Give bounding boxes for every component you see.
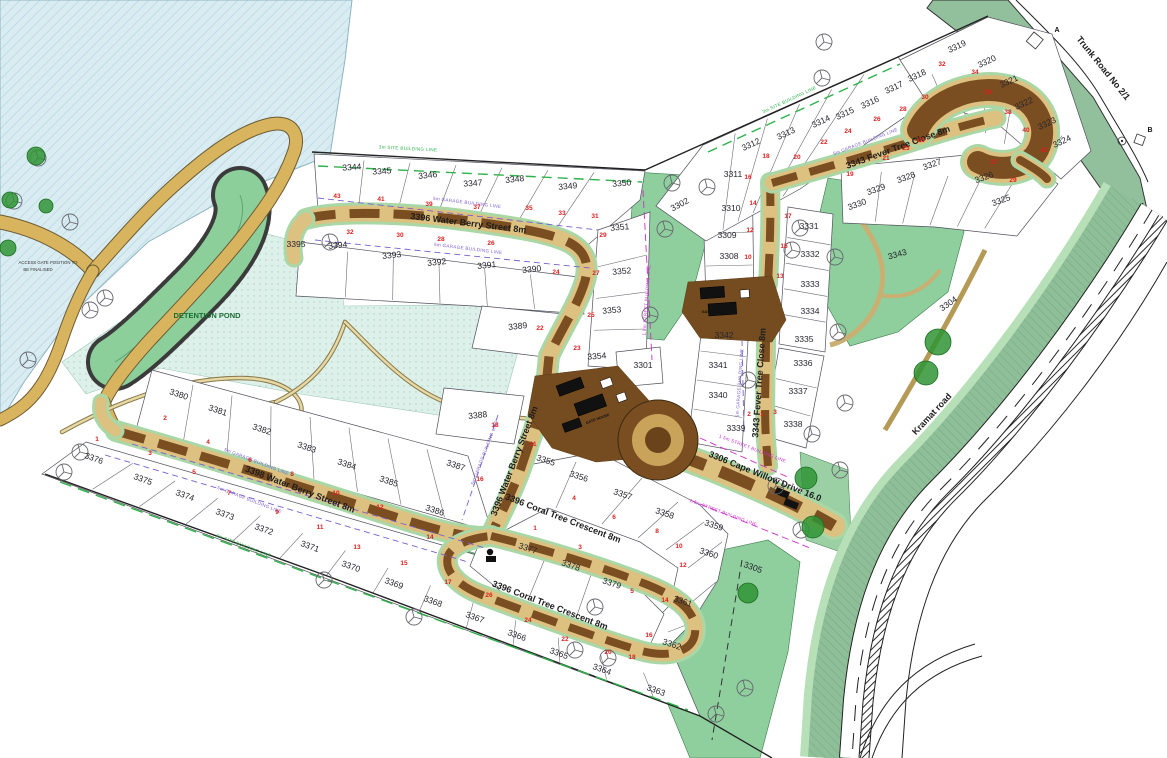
plot-number: 3395 <box>286 239 305 249</box>
red-dimension: 39 <box>425 201 433 208</box>
red-dimension: 20 <box>793 154 801 161</box>
green-tree-icon <box>738 583 758 603</box>
red-dimension: 10 <box>675 543 683 550</box>
plot-number: 3301 <box>633 360 652 370</box>
plot-number: 3333 <box>800 279 819 289</box>
red-dimension: 21 <box>882 155 890 162</box>
plot-number: 3336 <box>793 358 812 368</box>
red-dimension: 24 <box>844 128 852 135</box>
survey-mark-icon <box>1121 140 1123 142</box>
plot-number: 3344 <box>342 161 362 172</box>
red-dimension: 22 <box>820 139 828 146</box>
pump-icon <box>486 556 496 562</box>
red-dimension: 2 <box>747 411 751 418</box>
green-tree-icon <box>925 329 951 355</box>
area-label: BE FINALISED <box>23 267 52 272</box>
plot-number: 3332 <box>800 249 819 259</box>
pump-icon <box>487 549 493 555</box>
red-dimension: 3 <box>148 450 152 457</box>
red-dimension: 1 <box>533 525 537 532</box>
plot-number: 3348 <box>505 173 525 185</box>
red-dimension: 9 <box>275 509 279 516</box>
red-dimension: 32 <box>346 229 354 236</box>
plot-number: 3308 <box>719 251 738 261</box>
red-dimension: 38 <box>1004 109 1012 116</box>
red-dimension: 35 <box>525 205 533 212</box>
red-dimension: 32 <box>938 61 946 68</box>
plot-number: 3394 <box>328 239 348 251</box>
plot-number: 3349 <box>558 180 578 192</box>
red-dimension: 31 <box>591 213 599 220</box>
red-dimension: 6 <box>612 514 616 521</box>
red-dimension: 30 <box>921 94 929 101</box>
plot-number: 3337 <box>788 386 807 396</box>
red-dimension: 3 <box>578 544 582 551</box>
red-dimension: 28 <box>899 106 907 113</box>
red-dimension: 13 <box>353 544 361 551</box>
red-dimension: 8 <box>655 528 659 535</box>
red-dimension: 26 <box>873 116 881 123</box>
red-dimension: 5 <box>630 588 634 595</box>
plot-number: 3351 <box>610 221 630 233</box>
red-dimension: 10 <box>332 490 340 497</box>
plot-number: 3340 <box>708 390 727 400</box>
plot-number: 3352 <box>612 265 632 277</box>
plot-number: 3338 <box>783 419 802 429</box>
red-dimension: 14 <box>661 597 669 604</box>
red-dimension: 18 <box>628 654 636 661</box>
plot-number: 3345 <box>372 165 392 176</box>
red-dimension: 23 <box>573 345 581 352</box>
marker-a: A <box>1054 27 1059 34</box>
plot-number: 3339 <box>726 423 745 433</box>
plot-number: 3393 <box>382 249 402 261</box>
red-dimension: 26 <box>485 592 493 599</box>
plot-number: 3350 <box>612 177 632 189</box>
site-plan-page: AB3m SITE BUILDING LINE3m SITE BUILDING … <box>0 0 1167 758</box>
plot-number: 3309 <box>717 230 736 240</box>
green-tree-icon <box>914 361 938 385</box>
red-dimension: 14 <box>749 200 757 207</box>
plot-number: 3331 <box>799 221 818 231</box>
green-tree-icon <box>2 192 18 208</box>
red-dimension: 4 <box>206 439 210 446</box>
plot-number: 3341 <box>708 360 727 370</box>
red-dimension: 14 <box>426 534 434 541</box>
red-dimension: 25 <box>917 137 925 144</box>
red-dimension: 41 <box>377 196 385 203</box>
red-dimension: 23 <box>902 145 910 152</box>
red-dimension: 27 <box>592 270 600 277</box>
roundabout-island <box>645 427 671 453</box>
red-dimension: 1 <box>760 411 764 418</box>
plot-number: 3388 <box>468 409 488 421</box>
red-dimension: 12 <box>679 562 687 569</box>
red-dimension: 18 <box>491 422 499 429</box>
red-dimension: 43 <box>333 193 341 200</box>
red-dimension: 18 <box>762 153 770 160</box>
red-dimension: 7 <box>227 490 231 497</box>
area-label: ACCESS GATE POSITION TO <box>19 260 79 265</box>
area-label: DETENTION POND <box>173 311 241 320</box>
red-dimension: 26 <box>487 240 495 247</box>
site-plan-canvas: AB3m SITE BUILDING LINE3m SITE BUILDING … <box>0 0 1167 758</box>
red-dimension: 12 <box>746 227 754 234</box>
red-dimension: 4 <box>572 495 576 502</box>
fever-tree-column-carriageway <box>768 182 770 284</box>
gatehouse-building-icon <box>740 289 750 298</box>
plot-number: 3392 <box>427 256 447 268</box>
red-dimension: 42 <box>1040 147 1048 154</box>
red-dimension: 6 <box>248 457 252 464</box>
red-dimension: 27 <box>990 159 998 166</box>
plot-number: 3310 <box>721 203 740 213</box>
green-tree-icon <box>802 516 824 538</box>
red-dimension: 2 <box>163 415 167 422</box>
plot-number: 3389 <box>508 320 528 332</box>
plot-number: 3311 <box>724 169 743 179</box>
marker-b: B <box>1147 127 1152 134</box>
red-dimension: 37 <box>473 204 481 211</box>
red-dimension: 21 <box>529 441 537 448</box>
red-dimension: 16 <box>476 476 484 483</box>
red-dimension: 16 <box>744 174 752 181</box>
red-dimension: 36 <box>984 89 992 96</box>
red-dimension: 5 <box>192 469 196 476</box>
red-dimension: 25 <box>587 312 595 319</box>
red-dimension: 20 <box>604 649 612 656</box>
gatehouse-building-icon <box>700 286 725 299</box>
red-dimension: 29 <box>1009 177 1017 184</box>
red-dimension: 40 <box>1022 127 1030 134</box>
plot-number: 3342 <box>714 330 733 340</box>
green-tree-icon <box>39 199 53 213</box>
red-dimension: 3 <box>773 409 777 416</box>
plot-number: 3390 <box>522 263 542 275</box>
red-dimension: 10 <box>744 254 752 261</box>
red-dimension: 34 <box>971 69 979 76</box>
green-tree-icon <box>27 147 45 165</box>
red-dimension: 13 <box>776 273 784 280</box>
plot-number: 3346 <box>418 169 438 181</box>
red-dimension: 17 <box>784 213 792 220</box>
plot-number: 3347 <box>463 177 483 188</box>
green-tree-icon <box>0 240 16 256</box>
plot-number: 3334 <box>800 306 819 316</box>
red-dimension: 11 <box>317 524 324 531</box>
red-dimension: 29 <box>599 232 607 239</box>
red-dimension: 22 <box>561 636 569 643</box>
red-dimension: 30 <box>396 232 404 239</box>
red-dimension: 33 <box>558 210 566 217</box>
red-dimension: 1 <box>95 436 99 443</box>
red-dimension: 17 <box>444 579 452 586</box>
red-dimension: 19 <box>846 171 854 178</box>
red-dimension: 12 <box>376 504 384 511</box>
plot-number: 3391 <box>477 259 497 271</box>
red-dimension: 22 <box>536 325 544 332</box>
erf-block <box>588 212 650 370</box>
red-dimension: 28 <box>437 236 445 243</box>
red-dimension: 15 <box>780 243 788 250</box>
red-dimension: 24 <box>552 269 560 276</box>
plot-number: 3354 <box>587 350 607 361</box>
red-dimension: 16 <box>645 632 653 639</box>
red-dimension: 24 <box>524 617 532 624</box>
red-dimension: 8 <box>290 471 294 478</box>
plot-number: 3353 <box>602 304 622 316</box>
red-dimension: 15 <box>400 560 408 567</box>
area-label: GATE HOUSE <box>702 310 727 314</box>
plot-number: 3335 <box>794 334 813 344</box>
